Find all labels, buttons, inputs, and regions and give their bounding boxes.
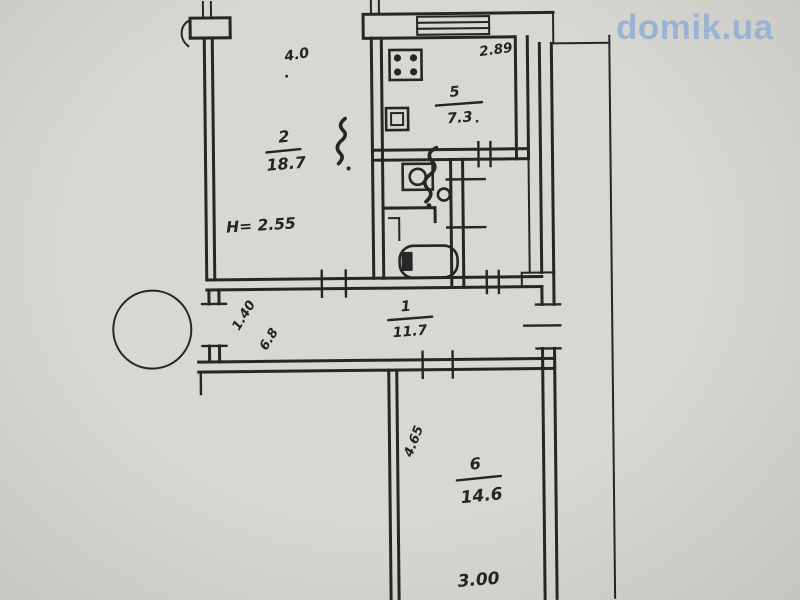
room-area-label: 7.3 — [446, 109, 473, 127]
wall — [199, 358, 555, 372]
dimension-label: 3.00 — [457, 569, 501, 592]
door-tick — [423, 351, 453, 377]
speck — [285, 75, 288, 78]
wall — [539, 43, 553, 272]
dimension-label: 1.40 — [229, 298, 259, 333]
dimension-label: 4.0 — [282, 45, 310, 65]
handwritten-dot-icon — [347, 167, 351, 171]
door-tick — [478, 142, 490, 166]
fraction-line — [436, 102, 482, 105]
floorplan-drawing: 2 18.7 H= 2.55 4.0 5 7.3 2.89 1 11.7 1.4… — [0, 0, 800, 600]
dimension-label: 2.89 — [478, 40, 513, 60]
washbasin-icon — [438, 188, 450, 200]
handwritten-mark-icon — [337, 119, 345, 164]
wall — [371, 38, 384, 278]
stove-icon — [389, 50, 421, 80]
wall — [207, 277, 542, 291]
bathtub-icon — [399, 245, 457, 278]
room-area-label: 18.7 — [266, 153, 308, 175]
door-tick — [487, 271, 499, 293]
window-icon — [417, 16, 489, 35]
sink-icon — [386, 108, 408, 130]
fraction-line — [457, 476, 501, 480]
wall — [383, 208, 435, 223]
wall — [553, 12, 609, 44]
wall-pilaster — [190, 18, 230, 38]
room-area-label: 11.7 — [392, 323, 428, 342]
room-number-label: 2 — [278, 127, 291, 147]
wall — [543, 366, 557, 598]
wall — [203, 2, 211, 18]
wall-building-edge — [609, 36, 615, 598]
dimension-label: 4.65 — [401, 424, 427, 460]
wall — [515, 37, 528, 159]
wall — [371, 0, 379, 14]
wall — [542, 272, 554, 304]
room-area-label: 14.6 — [460, 484, 504, 508]
door-jamb-tick — [202, 304, 226, 346]
wall — [209, 290, 219, 304]
room-number-label: 6 — [469, 454, 482, 474]
domik-ua-logo: domik.ua — [616, 8, 800, 48]
wall — [522, 272, 554, 286]
room-number-label: 1 — [400, 299, 411, 316]
fraction-line — [266, 149, 300, 152]
dimension-label: 6.8 — [257, 326, 282, 353]
door-tick — [322, 271, 346, 297]
speck — [476, 120, 479, 123]
wall — [389, 218, 399, 240]
fraction-line — [388, 317, 432, 320]
wall — [204, 38, 215, 280]
wall — [529, 159, 530, 273]
column-icon — [113, 290, 192, 369]
wall — [209, 346, 219, 362]
ceiling-height-label: H= 2.55 — [226, 214, 297, 236]
room-number-label: 5 — [449, 84, 460, 101]
wall — [389, 370, 399, 600]
floorplan-scan: 2 18.7 H= 2.55 4.0 5 7.3 2.89 1 11.7 1.4… — [0, 0, 800, 600]
